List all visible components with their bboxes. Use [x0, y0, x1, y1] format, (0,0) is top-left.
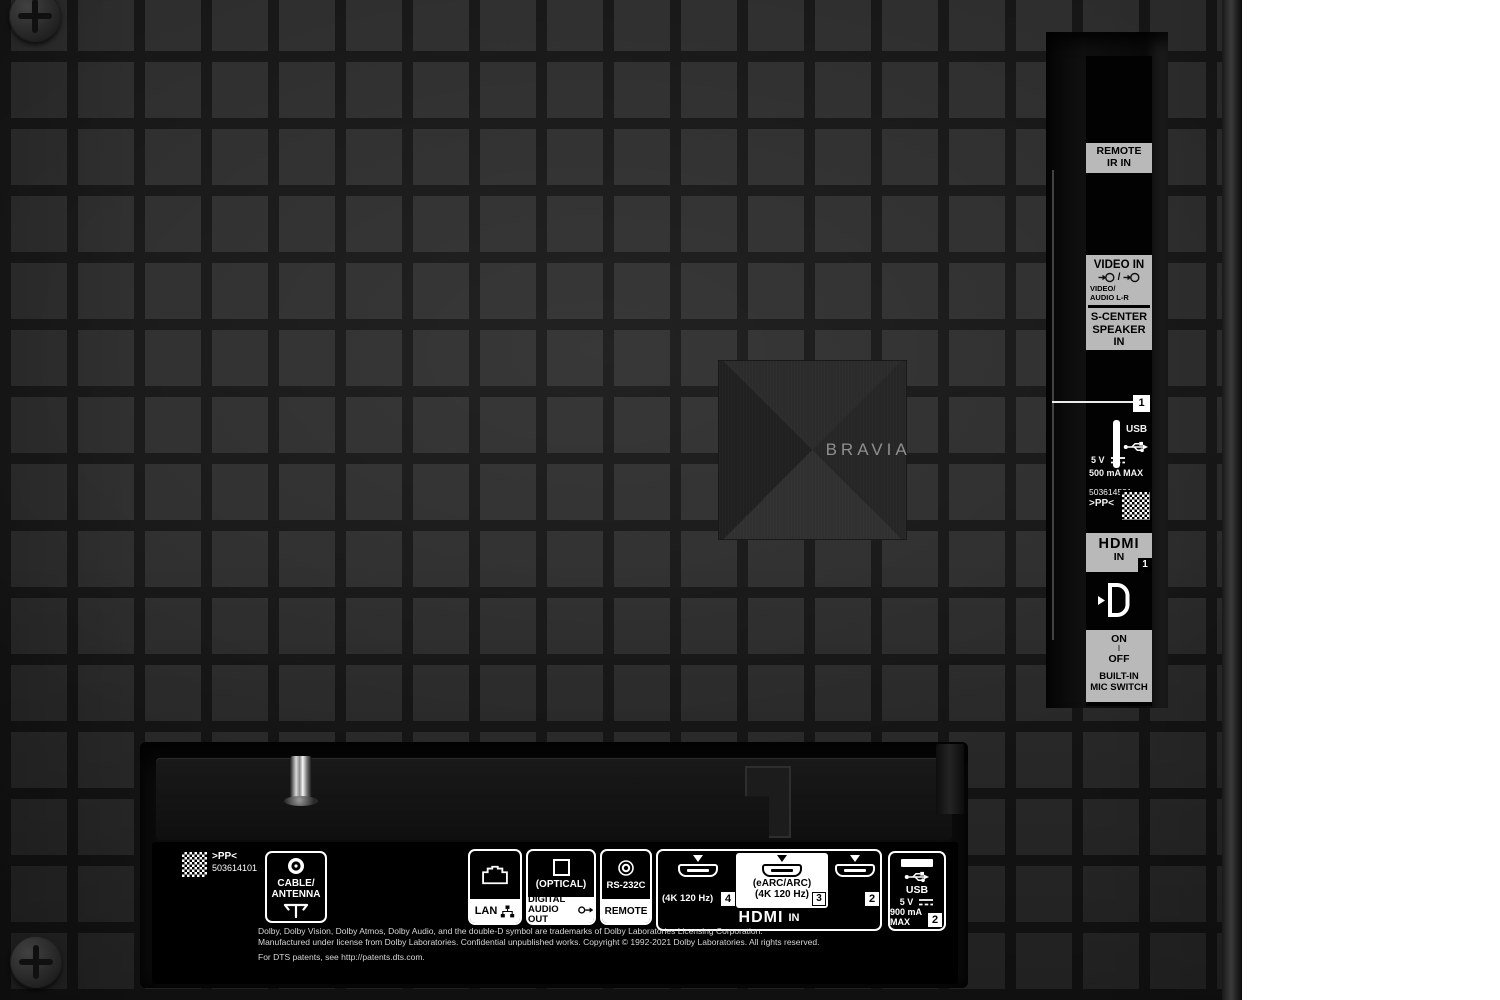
usb-power-row: 5 V: [1091, 455, 1126, 465]
rs232c-port-area: RS-232C: [602, 851, 650, 899]
minijack-icon: [617, 859, 635, 877]
usb-group-line: [1052, 401, 1133, 403]
usb-badge: 2: [928, 913, 942, 927]
screw-slot: [32, 0, 38, 33]
hdmi-port-2: 2: [830, 853, 880, 906]
legal-line-1: Dolby, Dolby Vision, Dolby Atmos, Dolby …: [258, 926, 918, 937]
hdmi-logo: HDMI: [1086, 533, 1152, 552]
mic-switch-caption: BUILT-IN MIC SWITCH: [1086, 672, 1152, 693]
rs232c-label: RS-232C REMOTE: [600, 849, 652, 925]
brand-label: BRAVIA: [826, 440, 911, 460]
screw-slot: [33, 945, 39, 979]
coax-jack-icon: [287, 857, 305, 875]
hdmi3-spec1: (eARC/ARC): [753, 878, 811, 889]
brand-plate: BRAVIA: [719, 361, 906, 539]
lan-label: LAN: [468, 849, 522, 925]
s-center-speaker-label: S-CENTER SPEAKER IN: [1086, 311, 1152, 349]
remote-ir-in-label: REMOTE IR IN: [1086, 143, 1152, 173]
usb-trident-icon: [1123, 440, 1149, 454]
network-icon: [500, 905, 515, 918]
bottom-connector-recess: >PP< 503614101 CABLE/ ANTENNA: [140, 742, 968, 988]
legal-line-2: Manufactured under license from Dolby La…: [258, 937, 918, 948]
tv-right-edge: [1222, 0, 1242, 1000]
connector-label-strip: >PP< 503614101 CABLE/ ANTENNA: [152, 842, 958, 984]
usb-voltage: 5 V: [1091, 455, 1105, 465]
mic-off: OFF: [1086, 653, 1152, 665]
rs232c-text: RS-232C: [606, 880, 645, 891]
hdmi3-spec2: (4K 120 Hz): [755, 889, 809, 900]
digital-audio-out-text: DIGITAL AUDIO OUT: [528, 895, 574, 925]
hdmi2-badge: 2: [865, 892, 879, 906]
usb-port-label: USB 5 V 900 mA MAX 2: [888, 851, 946, 931]
ethernet-port-icon: [480, 864, 510, 886]
tv-rear-photo: BRAVIA REMOTE IR IN VIDEO IN /: [0, 0, 1500, 1000]
hdmi-connector-icon: [762, 864, 802, 877]
cable-antenna-text: CABLE/ ANTENNA: [272, 878, 321, 900]
qr-code: [1122, 492, 1150, 520]
video-in-jack-icon: [1098, 272, 1115, 283]
down-arrow-icon: [777, 855, 787, 862]
video-in-title: VIDEO IN: [1086, 259, 1152, 271]
audio-out-arrow-icon: [577, 904, 594, 916]
remote-caption: REMOTE: [602, 899, 650, 923]
cable-antenna-label: CABLE/ ANTENNA: [265, 851, 327, 923]
hdmi4-spec: (4K 120 Hz): [662, 893, 713, 904]
usb-port-icon: [901, 859, 933, 867]
usb-power-row: 5 V: [900, 897, 935, 907]
lan-port-area: [470, 851, 520, 899]
side-connector-strip: REMOTE IR IN VIDEO IN / VIDEO/ AUDIO L-R…: [1086, 56, 1152, 706]
down-arrow-icon: [850, 855, 860, 862]
optical-port-area: (OPTICAL): [528, 851, 594, 897]
label-divider: [1088, 305, 1150, 308]
legal-line-3: For DTS patents, see http://patents.dts.…: [258, 952, 918, 963]
usb-voltage: 5 V: [900, 897, 914, 907]
usb-text: USB: [906, 884, 928, 896]
qr-code: [182, 852, 207, 877]
coax-connector: [290, 756, 312, 800]
down-arrow-icon: [693, 855, 703, 862]
lan-caption: LAN: [470, 899, 520, 923]
remote-text: REMOTE: [605, 906, 648, 917]
legal-text-block: Dolby, Dolby Vision, Dolby Atmos, Dolby …: [258, 926, 918, 963]
usb-label: USB: [1126, 424, 1147, 435]
hdmi-port-icon: [1096, 580, 1136, 620]
audio-in-jack-icon: [1123, 272, 1140, 283]
coax-connector-base: [284, 796, 318, 806]
hdmi-port-number-badge: 1: [1138, 558, 1152, 572]
cover-hinge-line: [1052, 170, 1054, 640]
serial-block: >PP< 503614101: [212, 851, 257, 873]
optical-out-label: (OPTICAL) DIGITAL AUDIO OUT: [526, 849, 596, 925]
usb-current: 500 mA MAX: [1089, 468, 1143, 478]
cover-latch-bar: [936, 744, 964, 814]
antenna-icon: [283, 903, 309, 918]
hdmi-in-group: (4K 120 Hz) 4 (eARC/ARC) (4K 120 Hz) 3 2: [656, 849, 882, 931]
video-in-icon-row: /: [1086, 272, 1152, 283]
pp-mark: >PP<: [212, 851, 257, 862]
video-audio-sub-label: VIDEO/ AUDIO L-R: [1086, 285, 1152, 302]
hdmi4-badge: 4: [721, 892, 735, 906]
hdmi-logo: HDMI: [739, 909, 784, 927]
lan-text: LAN: [475, 905, 498, 917]
hdmi-port-4: (4K 120 Hz) 4: [660, 853, 736, 906]
screw-icon: [10, 936, 62, 988]
usb-trident-icon: [904, 870, 930, 884]
hdmi-connector-icon: [678, 864, 718, 877]
pp-mark: >PP<: [1089, 498, 1114, 509]
optical-text: (OPTICAL): [536, 879, 587, 890]
hdmi3-badge: 3: [812, 892, 826, 906]
usb-port-number-badge: 1: [1133, 395, 1150, 412]
hdmi-in-label: HDMI IN 1: [1086, 533, 1152, 572]
video-in-label: VIDEO IN / VIDEO/ AUDIO L-R S-CENTER SPE…: [1086, 255, 1152, 350]
mic-switch-divider: I: [1086, 645, 1152, 653]
serial-number: 503614101: [212, 863, 257, 873]
digital-audio-out-caption: DIGITAL AUDIO OUT: [528, 897, 594, 923]
dc-symbol-icon: [1110, 456, 1126, 465]
separator: /: [1118, 272, 1121, 283]
mic-switch-label: ON I OFF BUILT-IN MIC SWITCH: [1086, 630, 1152, 702]
hdmi-port-3: (eARC/ARC) (4K 120 Hz) 3: [736, 853, 828, 908]
hdmi-in-text: IN: [788, 912, 799, 924]
hdmi-connector-icon: [835, 864, 875, 877]
inner-cover-panel: [156, 758, 952, 840]
dc-symbol-icon: [918, 898, 934, 907]
optical-port-icon: [553, 859, 570, 876]
